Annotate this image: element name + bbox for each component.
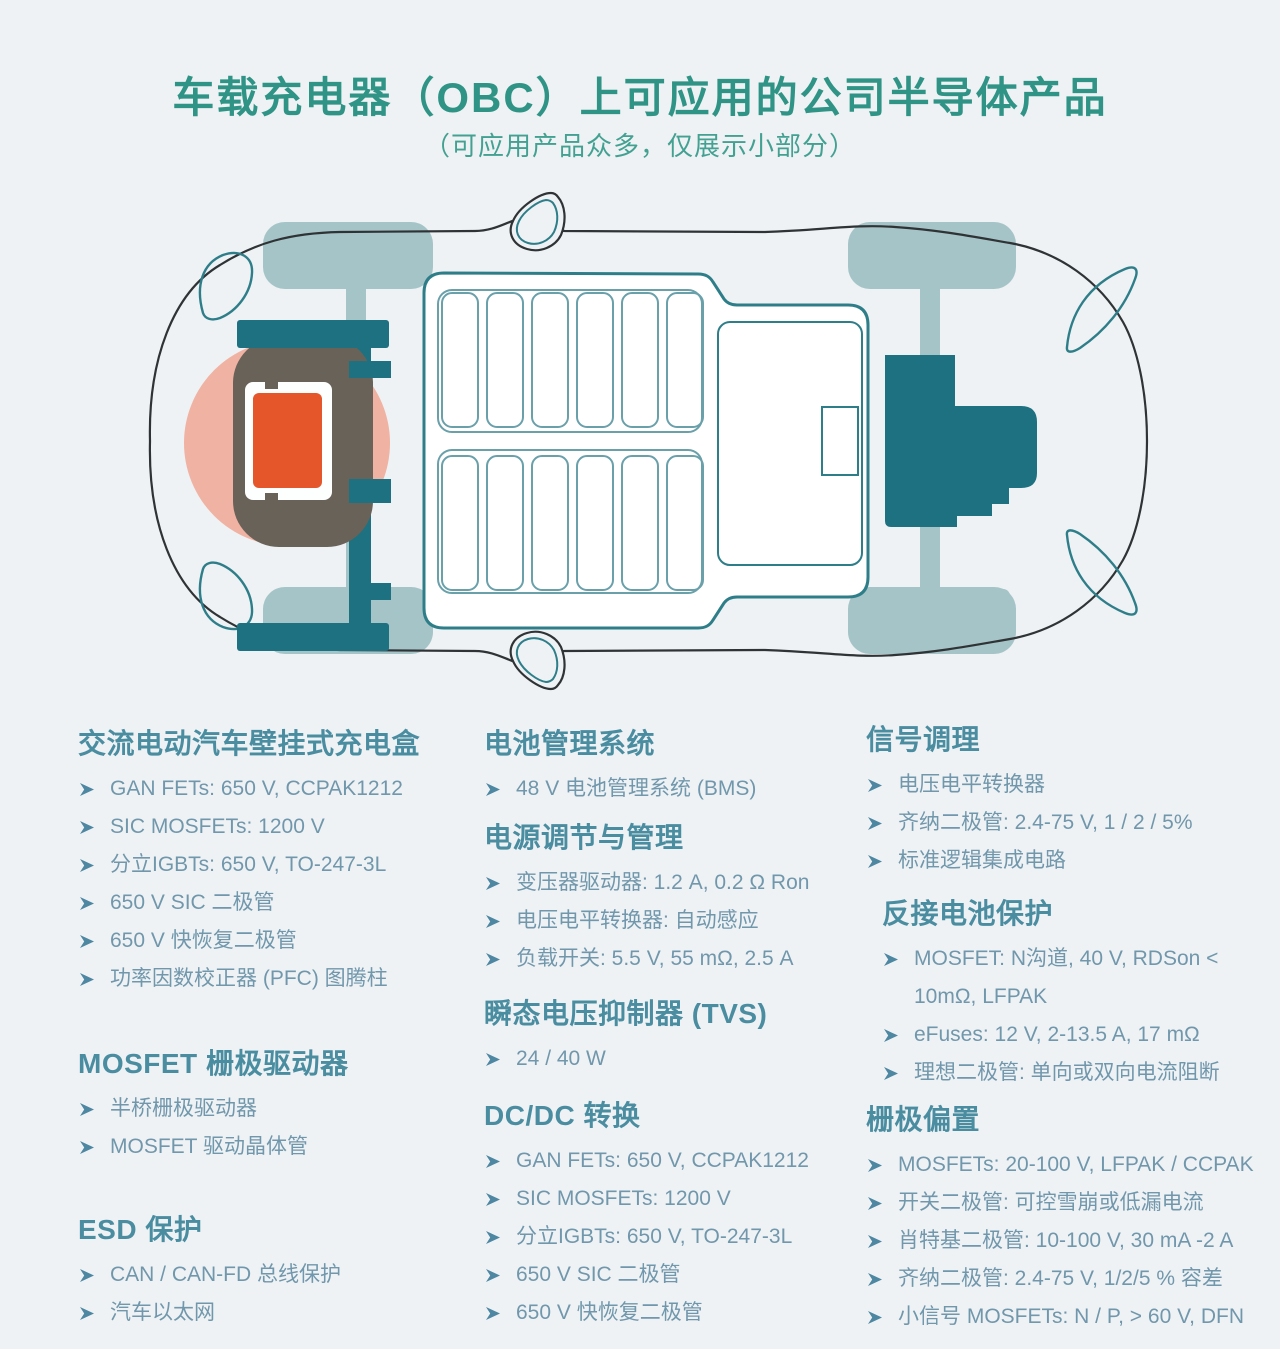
- product-item-text: 24 / 40 W: [516, 1040, 862, 1078]
- obc-frame-top-bar: [237, 320, 389, 348]
- arrowhead-right-icon: [484, 902, 516, 940]
- product-list-item: MOSFETs: 20-100 V, LFPAK / CCPAK: [866, 1146, 1270, 1184]
- side-mirror-bottom: [511, 632, 565, 689]
- arrowhead-right-icon: [78, 808, 110, 846]
- product-item-text: 标准逻辑集成电路: [898, 842, 1270, 880]
- section-heading: 电源调节与管理: [484, 816, 862, 860]
- product-list-item: 功率因数校正器 (PFC) 图腾柱: [78, 960, 474, 998]
- product-list-item: 变压器驱动器: 1.2 A, 0.2 Ω Ron: [484, 864, 862, 902]
- product-item-text: 电压电平转换器: 自动感应: [516, 902, 862, 940]
- arrowhead-right-icon: [484, 1040, 516, 1078]
- product-list-item: 650 V 快恢复二极管: [484, 1294, 862, 1332]
- product-list-item: 肖特基二极管: 10-100 V, 30 mA -2 A: [866, 1222, 1270, 1260]
- product-item-text: 半桥栅极驱动器: [110, 1090, 474, 1128]
- product-list: MOSFETs: 20-100 V, LFPAK / CCPAK开关二极管: 可…: [866, 1146, 1270, 1336]
- product-list: 电压电平转换器齐纳二极管: 2.4-75 V, 1 / 2 / 5%标准逻辑集成…: [866, 766, 1270, 880]
- product-list-item: 半桥栅极驱动器: [78, 1090, 474, 1128]
- arrowhead-right-icon: [866, 1184, 898, 1222]
- arrowhead-right-icon: [78, 884, 110, 922]
- product-item-text: 齐纳二极管: 2.4-75 V, 1 / 2 / 5%: [898, 804, 1270, 842]
- arrowhead-right-icon: [78, 770, 110, 808]
- product-list-item: GAN FETs: 650 V, CCPAK1212: [484, 1142, 862, 1180]
- product-section: 交流电动汽车壁挂式充电盒GAN FETs: 650 V, CCPAK1212SI…: [78, 722, 474, 998]
- section-heading: 瞬态电压抑制器 (TVS): [484, 992, 862, 1036]
- front-left-wheel: [848, 222, 1016, 289]
- product-item-text: 650 V 快恢复二极管: [110, 922, 474, 960]
- arrowhead-right-icon: [866, 1298, 898, 1336]
- product-item-text: CAN / CAN-FD 总线保护: [110, 1256, 474, 1294]
- arrowhead-right-icon: [484, 940, 516, 978]
- product-list: GAN FETs: 650 V, CCPAK1212SIC MOSFETs: 1…: [78, 770, 474, 998]
- arrowhead-right-icon: [866, 1260, 898, 1298]
- product-list: 半桥栅极驱动器MOSFET 驱动晶体管: [78, 1090, 474, 1166]
- arrowhead-right-icon: [866, 804, 898, 842]
- product-section: 栅极偏置MOSFETs: 20-100 V, LFPAK / CCPAK开关二极…: [866, 1098, 1270, 1336]
- product-item-text: 小信号 MOSFETs: N / P, > 60 V, DFN: [898, 1298, 1270, 1336]
- product-list-item: 24 / 40 W: [484, 1040, 862, 1078]
- product-columns: 交流电动汽车壁挂式充电盒GAN FETs: 650 V, CCPAK1212SI…: [0, 712, 1280, 1349]
- front-right-wheel: [848, 587, 1016, 654]
- product-column-right: 信号调理电压电平转换器齐纳二极管: 2.4-75 V, 1 / 2 / 5%标准…: [866, 712, 1270, 1336]
- product-section: 信号调理电压电平转换器齐纳二极管: 2.4-75 V, 1 / 2 / 5%标准…: [866, 718, 1270, 880]
- arrowhead-right-icon: [484, 1180, 516, 1218]
- arrowhead-right-icon: [484, 1256, 516, 1294]
- section-heading: 信号调理: [866, 718, 1270, 762]
- product-item-text: 分立IGBTs: 650 V, TO-247-3L: [516, 1218, 862, 1256]
- arrowhead-right-icon: [882, 1016, 914, 1054]
- product-section: ESD 保护CAN / CAN-FD 总线保护汽车以太网: [78, 1208, 474, 1332]
- product-list: 变压器驱动器: 1.2 A, 0.2 Ω Ron电压电平转换器: 自动感应负载开…: [484, 864, 862, 978]
- arrowhead-right-icon: [484, 770, 516, 808]
- arrowhead-right-icon: [78, 1128, 110, 1166]
- section-heading: ESD 保护: [78, 1208, 474, 1252]
- product-list-item: 分立IGBTs: 650 V, TO-247-3L: [78, 846, 474, 884]
- product-list-item: 理想二极管: 单向或双向电流阻断: [882, 1054, 1270, 1092]
- product-section: 瞬态电压抑制器 (TVS)24 / 40 W: [484, 992, 862, 1078]
- product-item-text: 开关二极管: 可控雪崩或低漏电流: [898, 1184, 1270, 1222]
- arrowhead-right-icon: [484, 1142, 516, 1180]
- product-list-item: 48 V 电池管理系统 (BMS): [484, 770, 862, 808]
- arrowhead-right-icon: [866, 842, 898, 880]
- arrowhead-right-icon: [484, 1218, 516, 1256]
- section-heading: DC/DC 转换: [484, 1094, 862, 1138]
- arrowhead-right-icon: [78, 1256, 110, 1294]
- product-item-text: SIC MOSFETs: 1200 V: [516, 1180, 862, 1218]
- rear-light-outline-top: [200, 253, 252, 319]
- rear-light-outline-bottom: [200, 563, 252, 629]
- product-section: 电池管理系统48 V 电池管理系统 (BMS): [484, 722, 862, 808]
- product-list-item: eFuses: 12 V, 2-13.5 A, 17 mΩ: [882, 1016, 1270, 1054]
- page-subtitle: （可应用产品众多，仅展示小部分）: [0, 126, 1280, 163]
- product-item-text: 650 V 快恢复二极管: [516, 1294, 862, 1332]
- product-item-text: 650 V SIC 二极管: [516, 1256, 862, 1294]
- side-mirror-top: [511, 193, 565, 250]
- ev-top-view-diagram: [125, 185, 1170, 697]
- obc-bracket-lower: [349, 583, 391, 600]
- product-list-item: GAN FETs: 650 V, CCPAK1212: [78, 770, 474, 808]
- product-item-text: eFuses: 12 V, 2-13.5 A, 17 mΩ: [914, 1016, 1270, 1054]
- product-item-text: 负载开关: 5.5 V, 55 mΩ, 2.5 A: [516, 940, 862, 978]
- product-section: MOSFET 栅极驱动器半桥栅极驱动器MOSFET 驱动晶体管: [78, 1042, 474, 1166]
- product-item-text: SIC MOSFETs: 1200 V: [110, 808, 474, 846]
- product-section: 反接电池保护MOSFET: N沟道, 40 V, RDSon < 10mΩ, L…: [866, 892, 1270, 1092]
- headlight-outline-top: [1067, 267, 1137, 351]
- arrowhead-right-icon: [78, 922, 110, 960]
- arrowhead-right-icon: [866, 766, 898, 804]
- obc-die-orange: [253, 393, 322, 488]
- product-list: CAN / CAN-FD 总线保护汽车以太网: [78, 1256, 474, 1332]
- arrowhead-right-icon: [866, 1222, 898, 1260]
- section-heading: 电池管理系统: [484, 722, 862, 766]
- arrowhead-right-icon: [866, 1146, 898, 1184]
- arrowhead-right-icon: [78, 960, 110, 998]
- product-item-text: MOSFETs: 20-100 V, LFPAK / CCPAK: [898, 1146, 1270, 1184]
- product-list: 24 / 40 W: [484, 1040, 862, 1078]
- section-heading: 交流电动汽车壁挂式充电盒: [78, 722, 474, 766]
- ev-top-view-svg: [125, 185, 1170, 697]
- product-list-item: 汽车以太网: [78, 1294, 474, 1332]
- page-title: 车载充电器（OBC）上可应用的公司半导体产品: [0, 64, 1280, 125]
- product-list-item: 电压电平转换器: [866, 766, 1270, 804]
- arrowhead-right-icon: [78, 846, 110, 884]
- product-item-text: MOSFET: N沟道, 40 V, RDSon < 10mΩ, LFPAK: [914, 940, 1270, 1016]
- product-list-item: 650 V 快恢复二极管: [78, 922, 474, 960]
- arrowhead-right-icon: [882, 1054, 914, 1092]
- product-item-text: 理想二极管: 单向或双向电流阻断: [914, 1054, 1270, 1092]
- arrowhead-right-icon: [78, 1294, 110, 1332]
- compartment-latch: [822, 407, 858, 475]
- arrowhead-right-icon: [882, 940, 914, 978]
- product-section: 电源调节与管理变压器驱动器: 1.2 A, 0.2 Ω Ron电压电平转换器: …: [484, 816, 862, 978]
- product-column-middle: 电池管理系统48 V 电池管理系统 (BMS)电源调节与管理变压器驱动器: 1.…: [484, 712, 862, 1332]
- arrowhead-right-icon: [484, 1294, 516, 1332]
- headlight-outline-bottom: [1067, 530, 1137, 614]
- product-list-item: 650 V SIC 二极管: [78, 884, 474, 922]
- obc-frame-bottom-bar: [237, 623, 389, 651]
- product-item-text: 肖特基二极管: 10-100 V, 30 mA -2 A: [898, 1222, 1270, 1260]
- product-list-item: 电压电平转换器: 自动感应: [484, 902, 862, 940]
- obc-bracket-upper: [349, 361, 391, 378]
- product-column-left: 交流电动汽车壁挂式充电盒GAN FETs: 650 V, CCPAK1212SI…: [78, 712, 474, 1332]
- product-item-text: 48 V 电池管理系统 (BMS): [516, 770, 862, 808]
- obc-package-notch-top: [265, 380, 278, 389]
- product-item-text: GAN FETs: 650 V, CCPAK1212: [516, 1142, 862, 1180]
- product-list-item: 开关二极管: 可控雪崩或低漏电流: [866, 1184, 1270, 1222]
- product-item-text: 汽车以太网: [110, 1294, 474, 1332]
- front-motor-unit: [885, 355, 1037, 527]
- product-item-text: 齐纳二极管: 2.4-75 V, 1/2/5 % 容差: [898, 1260, 1270, 1298]
- product-list-item: 分立IGBTs: 650 V, TO-247-3L: [484, 1218, 862, 1256]
- obc-bracket-mid: [349, 479, 391, 503]
- product-list-item: 齐纳二极管: 2.4-75 V, 1 / 2 / 5%: [866, 804, 1270, 842]
- product-item-text: 650 V SIC 二极管: [110, 884, 474, 922]
- product-list-item: SIC MOSFETs: 1200 V: [484, 1180, 862, 1218]
- product-item-text: 功率因数校正器 (PFC) 图腾柱: [110, 960, 474, 998]
- product-list-item: 齐纳二极管: 2.4-75 V, 1/2/5 % 容差: [866, 1260, 1270, 1298]
- product-item-text: MOSFET 驱动晶体管: [110, 1128, 474, 1166]
- product-list: 48 V 电池管理系统 (BMS): [484, 770, 862, 808]
- product-item-text: 分立IGBTs: 650 V, TO-247-3L: [110, 846, 474, 884]
- section-heading: 反接电池保护: [882, 892, 1270, 936]
- product-list: MOSFET: N沟道, 40 V, RDSon < 10mΩ, LFPAKeF…: [882, 940, 1270, 1092]
- product-list-item: 标准逻辑集成电路: [866, 842, 1270, 880]
- product-section: DC/DC 转换GAN FETs: 650 V, CCPAK1212SIC MO…: [484, 1094, 862, 1332]
- product-item-text: 电压电平转换器: [898, 766, 1270, 804]
- product-list-item: MOSFET: N沟道, 40 V, RDSon < 10mΩ, LFPAK: [882, 940, 1270, 1016]
- product-list-item: CAN / CAN-FD 总线保护: [78, 1256, 474, 1294]
- product-list: GAN FETs: 650 V, CCPAK1212SIC MOSFETs: 1…: [484, 1142, 862, 1332]
- section-heading: 栅极偏置: [866, 1098, 1270, 1142]
- product-list-item: 负载开关: 5.5 V, 55 mΩ, 2.5 A: [484, 940, 862, 978]
- arrowhead-right-icon: [484, 864, 516, 902]
- obc-package-notch-bottom: [265, 493, 278, 502]
- arrowhead-right-icon: [78, 1090, 110, 1128]
- product-list-item: SIC MOSFETs: 1200 V: [78, 808, 474, 846]
- product-item-text: 变压器驱动器: 1.2 A, 0.2 Ω Ron: [516, 864, 862, 902]
- product-item-text: GAN FETs: 650 V, CCPAK1212: [110, 770, 474, 808]
- product-list-item: MOSFET 驱动晶体管: [78, 1128, 474, 1166]
- product-list-item: 650 V SIC 二极管: [484, 1256, 862, 1294]
- section-heading: MOSFET 栅极驱动器: [78, 1042, 474, 1086]
- product-list-item: 小信号 MOSFETs: N / P, > 60 V, DFN: [866, 1298, 1270, 1336]
